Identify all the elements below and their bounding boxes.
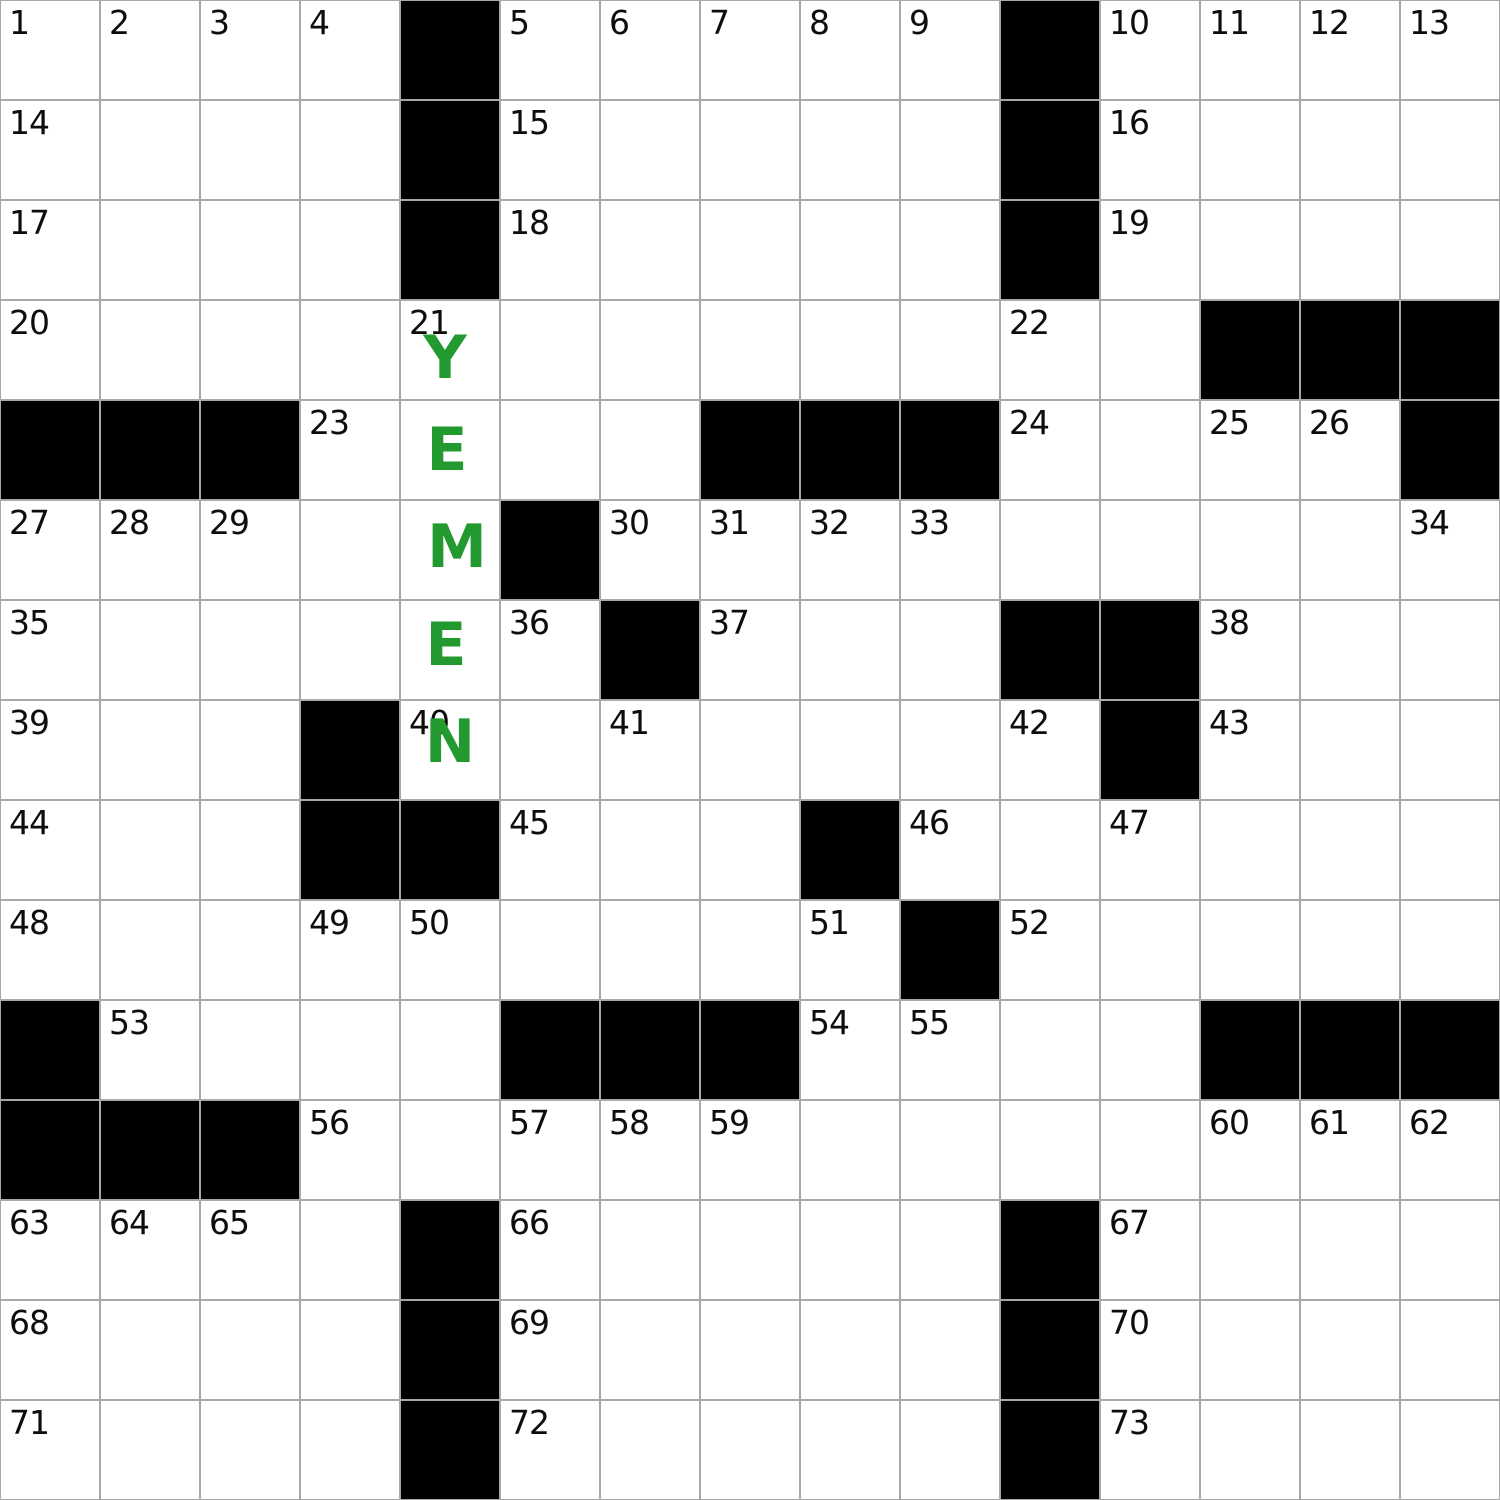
grid-cell[interactable]: 49 xyxy=(300,900,400,1000)
clue-number: 57 xyxy=(509,1102,549,1143)
grid-cell[interactable] xyxy=(100,800,200,900)
grid-cell[interactable] xyxy=(100,200,200,300)
clue-number: 38 xyxy=(1209,602,1249,643)
grid-cell[interactable]: 6 xyxy=(600,0,700,100)
grid-cell[interactable] xyxy=(500,900,600,1000)
grid-cell[interactable] xyxy=(1200,1300,1300,1400)
clue-number: 52 xyxy=(1009,902,1049,943)
grid-cell[interactable] xyxy=(1200,900,1300,1000)
grid-cell[interactable]: 53 xyxy=(100,1000,200,1100)
grid-cell[interactable] xyxy=(1300,500,1400,600)
grid-cell[interactable]: 52 xyxy=(1000,900,1100,1000)
grid-cell[interactable]: 57 xyxy=(500,1100,600,1200)
grid-cell[interactable] xyxy=(1400,800,1500,900)
grid-cell[interactable] xyxy=(300,1200,400,1300)
black-cell xyxy=(1400,1000,1500,1100)
grid-cell[interactable] xyxy=(200,200,300,300)
clue-number: 28 xyxy=(109,502,149,543)
clue-number: 27 xyxy=(9,502,49,543)
clue-number: 31 xyxy=(709,502,749,543)
grid-cell[interactable] xyxy=(200,300,300,400)
answer-letter: E xyxy=(427,420,468,480)
grid-cell[interactable]: 35 xyxy=(0,600,100,700)
grid-cell[interactable]: 59 xyxy=(700,1100,800,1200)
grid-cell[interactable]: 54 xyxy=(800,1000,900,1100)
clue-number: 30 xyxy=(609,502,649,543)
grid-cell[interactable] xyxy=(400,1000,500,1100)
grid-cell[interactable]: M xyxy=(400,500,500,600)
black-cell xyxy=(100,400,200,500)
clue-number: 29 xyxy=(209,502,249,543)
grid-cell[interactable]: 46 xyxy=(900,800,1000,900)
black-cell xyxy=(0,400,100,500)
grid-cell[interactable] xyxy=(300,200,400,300)
grid-cell[interactable] xyxy=(900,200,1000,300)
grid-cell[interactable]: 15 xyxy=(500,100,600,200)
grid-cell[interactable]: 3 xyxy=(200,0,300,100)
clue-number: 59 xyxy=(709,1102,749,1143)
grid-cell[interactable]: 50 xyxy=(400,900,500,1000)
clue-number: 22 xyxy=(1009,302,1049,343)
grid-cell[interactable] xyxy=(1100,1000,1200,1100)
grid-cell[interactable]: 22 xyxy=(1000,300,1100,400)
clue-number: 26 xyxy=(1309,402,1349,443)
black-cell xyxy=(300,800,400,900)
grid-cell[interactable]: 43 xyxy=(1200,700,1300,800)
clue-number: 64 xyxy=(109,1202,149,1243)
grid-cell[interactable] xyxy=(300,1000,400,1100)
grid-cell[interactable]: 70 xyxy=(1100,1300,1200,1400)
grid-cell[interactable]: 12 xyxy=(1300,0,1400,100)
grid-cell[interactable]: 67 xyxy=(1100,1200,1200,1300)
clue-number: 50 xyxy=(409,902,449,943)
clue-number: 18 xyxy=(509,202,549,243)
black-cell xyxy=(1000,200,1100,300)
grid-cell[interactable]: 13 xyxy=(1400,0,1500,100)
grid-cell[interactable]: 58 xyxy=(600,1100,700,1200)
clue-number: 41 xyxy=(609,702,649,743)
grid-cell[interactable]: 23 xyxy=(300,400,400,500)
grid-cell[interactable]: 7 xyxy=(700,0,800,100)
grid-cell[interactable]: 32 xyxy=(800,500,900,600)
grid-cell[interactable] xyxy=(100,900,200,1000)
grid-cell[interactable]: 28 xyxy=(100,500,200,600)
black-cell xyxy=(1000,1200,1100,1300)
grid-cell[interactable]: 64 xyxy=(100,1200,200,1300)
black-cell xyxy=(300,700,400,800)
clue-number: 20 xyxy=(9,302,49,343)
clue-number: 2 xyxy=(109,2,129,43)
clue-number: 68 xyxy=(9,1302,49,1343)
grid-cell[interactable]: 10 xyxy=(1100,0,1200,100)
grid-cell[interactable] xyxy=(700,800,800,900)
grid-cell[interactable] xyxy=(800,1200,900,1300)
grid-cell[interactable]: 41 xyxy=(600,700,700,800)
grid-cell[interactable]: 39 xyxy=(0,700,100,800)
grid-cell[interactable]: 20 xyxy=(0,300,100,400)
clue-number: 19 xyxy=(1109,202,1149,243)
grid-cell[interactable]: 33 xyxy=(900,500,1000,600)
clue-number: 39 xyxy=(9,702,49,743)
clue-number: 42 xyxy=(1009,702,1049,743)
grid-cell[interactable] xyxy=(600,200,700,300)
grid-cell[interactable]: 27 xyxy=(0,500,100,600)
grid-cell[interactable] xyxy=(900,700,1000,800)
grid-cell[interactable] xyxy=(100,1300,200,1400)
grid-cell[interactable]: 60 xyxy=(1200,1100,1300,1200)
grid-cell[interactable] xyxy=(1400,200,1500,300)
grid-cell[interactable] xyxy=(600,1400,700,1500)
answer-letter: E xyxy=(426,615,467,675)
clue-number: 12 xyxy=(1309,2,1349,43)
black-cell xyxy=(500,1000,600,1100)
grid-cell[interactable] xyxy=(900,300,1000,400)
grid-cell[interactable] xyxy=(1400,900,1500,1000)
grid-cell[interactable]: 65 xyxy=(200,1200,300,1300)
grid-cell[interactable] xyxy=(800,300,900,400)
grid-cell[interactable] xyxy=(500,400,600,500)
clue-number: 8 xyxy=(809,2,829,43)
grid-cell[interactable] xyxy=(800,1100,900,1200)
grid-cell[interactable] xyxy=(100,700,200,800)
grid-cell[interactable]: 5 xyxy=(500,0,600,100)
clue-number: 36 xyxy=(509,602,549,643)
grid-cell[interactable]: 30 xyxy=(600,500,700,600)
black-cell xyxy=(1300,1000,1400,1100)
grid-cell[interactable] xyxy=(800,200,900,300)
black-cell xyxy=(1300,300,1400,400)
black-cell xyxy=(1400,400,1500,500)
clue-number: 72 xyxy=(509,1402,549,1443)
grid-cell[interactable] xyxy=(700,300,800,400)
grid-cell[interactable] xyxy=(200,800,300,900)
grid-cell[interactable] xyxy=(300,500,400,600)
black-cell xyxy=(400,100,500,200)
grid-cell[interactable] xyxy=(1200,200,1300,300)
grid-cell[interactable] xyxy=(1400,1400,1500,1500)
black-cell xyxy=(1000,1400,1100,1500)
grid-cell[interactable]: 31 xyxy=(700,500,800,600)
grid-cell[interactable] xyxy=(300,1300,400,1400)
clue-number: 51 xyxy=(809,902,849,943)
clue-number: 4 xyxy=(309,2,329,43)
grid-cell[interactable] xyxy=(200,1000,300,1100)
clue-number: 35 xyxy=(9,602,49,643)
clue-number: 54 xyxy=(809,1002,849,1043)
clue-number: 23 xyxy=(309,402,349,443)
black-cell xyxy=(400,200,500,300)
clue-number: 9 xyxy=(909,2,929,43)
grid-cell[interactable] xyxy=(1200,1200,1300,1300)
grid-cell[interactable]: 21Y xyxy=(400,300,500,400)
clue-number: 63 xyxy=(9,1202,49,1243)
clue-number: 37 xyxy=(709,602,749,643)
grid-cell[interactable]: 18 xyxy=(500,200,600,300)
black-cell xyxy=(100,1100,200,1200)
grid-cell[interactable] xyxy=(600,1300,700,1400)
grid-cell[interactable]: 8 xyxy=(800,0,900,100)
grid-cell[interactable] xyxy=(900,1100,1000,1200)
grid-cell[interactable]: 56 xyxy=(300,1100,400,1200)
grid-cell[interactable] xyxy=(1200,500,1300,600)
grid-cell[interactable] xyxy=(600,800,700,900)
grid-cell[interactable]: 36 xyxy=(500,600,600,700)
grid-cell[interactable] xyxy=(700,900,800,1000)
answer-letter: Y xyxy=(423,328,466,388)
grid-cell[interactable]: 62 xyxy=(1400,1100,1500,1200)
black-cell xyxy=(400,800,500,900)
grid-cell[interactable]: 26 xyxy=(1300,400,1400,500)
clue-number: 73 xyxy=(1109,1402,1149,1443)
clue-number: 67 xyxy=(1109,1202,1149,1243)
grid-cell[interactable]: 1 xyxy=(0,0,100,100)
grid-cell[interactable]: 16 xyxy=(1100,100,1200,200)
grid-cell[interactable] xyxy=(1000,1000,1100,1100)
clue-number: 45 xyxy=(509,802,549,843)
grid-cell[interactable] xyxy=(1000,500,1100,600)
clue-number: 17 xyxy=(9,202,49,243)
black-cell xyxy=(900,900,1000,1000)
grid-cell[interactable] xyxy=(1400,1200,1500,1300)
grid-cell[interactable] xyxy=(1300,1300,1400,1400)
grid-cell[interactable] xyxy=(1200,800,1300,900)
clue-number: 33 xyxy=(909,502,949,543)
grid-cell[interactable] xyxy=(300,600,400,700)
grid-cell[interactable]: E xyxy=(400,400,500,500)
clue-number: 13 xyxy=(1409,2,1449,43)
grid-cell[interactable]: 29 xyxy=(200,500,300,600)
grid-cell[interactable] xyxy=(600,900,700,1000)
grid-cell[interactable] xyxy=(1300,800,1400,900)
black-cell xyxy=(700,400,800,500)
clue-number: 3 xyxy=(209,2,229,43)
grid-cell[interactable] xyxy=(1100,1100,1200,1200)
clue-number: 70 xyxy=(1109,1302,1149,1343)
grid-cell[interactable]: 25 xyxy=(1200,400,1300,500)
clue-number: 16 xyxy=(1109,102,1149,143)
grid-cell[interactable]: E xyxy=(400,600,500,700)
clue-number: 34 xyxy=(1409,502,1449,543)
clue-number: 11 xyxy=(1209,2,1249,43)
clue-number: 24 xyxy=(1009,402,1049,443)
grid-cell[interactable] xyxy=(1300,1200,1400,1300)
grid-cell[interactable] xyxy=(1300,600,1400,700)
grid-cell[interactable]: 14 xyxy=(0,100,100,200)
grid-cell[interactable] xyxy=(300,100,400,200)
grid-cell[interactable]: 63 xyxy=(0,1200,100,1300)
black-cell xyxy=(1100,700,1200,800)
black-cell xyxy=(400,1300,500,1400)
grid-cell[interactable] xyxy=(800,700,900,800)
grid-cell[interactable]: 66 xyxy=(500,1200,600,1300)
grid-cell[interactable] xyxy=(500,700,600,800)
grid-cell[interactable] xyxy=(1300,1400,1400,1500)
grid-cell[interactable]: 55 xyxy=(900,1000,1000,1100)
grid-cell[interactable] xyxy=(1100,900,1200,1000)
grid-cell[interactable] xyxy=(1200,100,1300,200)
clue-number: 58 xyxy=(609,1102,649,1143)
grid-cell[interactable] xyxy=(700,700,800,800)
clue-number: 47 xyxy=(1109,802,1149,843)
clue-number: 32 xyxy=(809,502,849,543)
grid-cell[interactable] xyxy=(600,400,700,500)
grid-cell[interactable] xyxy=(200,700,300,800)
grid-cell[interactable] xyxy=(1300,700,1400,800)
grid-cell[interactable] xyxy=(200,600,300,700)
grid-cell[interactable] xyxy=(300,1400,400,1500)
grid-cell[interactable]: 51 xyxy=(800,900,900,1000)
clue-number: 65 xyxy=(209,1202,249,1243)
grid-cell[interactable]: 42 xyxy=(1000,700,1100,800)
clue-number: 1 xyxy=(9,2,29,43)
clue-number: 7 xyxy=(709,2,729,43)
black-cell xyxy=(400,0,500,100)
grid-cell[interactable] xyxy=(1100,500,1200,600)
grid-cell[interactable] xyxy=(1300,900,1400,1000)
grid-cell[interactable]: 44 xyxy=(0,800,100,900)
grid-cell[interactable]: 48 xyxy=(0,900,100,1000)
grid-cell[interactable]: 9 xyxy=(900,0,1000,100)
grid-cell[interactable]: 40N xyxy=(400,700,500,800)
grid-cell[interactable] xyxy=(500,300,600,400)
black-cell xyxy=(1000,100,1100,200)
grid-cell[interactable] xyxy=(700,100,800,200)
black-cell xyxy=(1000,0,1100,100)
clue-number: 43 xyxy=(1209,702,1249,743)
grid-cell[interactable] xyxy=(1000,1100,1100,1200)
black-cell xyxy=(400,1200,500,1300)
grid-cell[interactable] xyxy=(1100,300,1200,400)
grid-cell[interactable] xyxy=(100,600,200,700)
grid-cell[interactable] xyxy=(900,1200,1000,1300)
clue-number: 55 xyxy=(909,1002,949,1043)
grid-cell[interactable]: 38 xyxy=(1200,600,1300,700)
grid-cell[interactable] xyxy=(1400,1300,1500,1400)
grid-cell[interactable]: 71 xyxy=(0,1400,100,1500)
grid-cell[interactable] xyxy=(700,200,800,300)
black-cell xyxy=(900,400,1000,500)
black-cell xyxy=(800,800,900,900)
clue-number: 66 xyxy=(509,1202,549,1243)
clue-number: 6 xyxy=(609,2,629,43)
black-cell xyxy=(0,1000,100,1100)
grid-cell[interactable]: 37 xyxy=(700,600,800,700)
grid-cell[interactable] xyxy=(100,1400,200,1500)
grid-cell[interactable] xyxy=(300,300,400,400)
grid-cell[interactable]: 2 xyxy=(100,0,200,100)
grid-cell[interactable]: 72 xyxy=(500,1400,600,1500)
grid-cell[interactable] xyxy=(400,1100,500,1200)
grid-cell[interactable]: 19 xyxy=(1100,200,1200,300)
clue-number: 61 xyxy=(1309,1102,1349,1143)
grid-cell[interactable] xyxy=(1400,600,1500,700)
grid-cell[interactable] xyxy=(700,1200,800,1300)
black-cell xyxy=(1400,300,1500,400)
black-cell xyxy=(1200,1000,1300,1100)
black-cell xyxy=(600,600,700,700)
black-cell xyxy=(500,500,600,600)
grid-cell[interactable] xyxy=(1300,200,1400,300)
grid-cell[interactable] xyxy=(600,1200,700,1300)
clue-number: 25 xyxy=(1209,402,1249,443)
black-cell xyxy=(800,400,900,500)
clue-number: 56 xyxy=(309,1102,349,1143)
grid-cell[interactable]: 69 xyxy=(500,1300,600,1400)
grid-cell[interactable] xyxy=(800,1300,900,1400)
black-cell xyxy=(600,1000,700,1100)
grid-cell[interactable] xyxy=(200,100,300,200)
clue-number: 5 xyxy=(509,2,529,43)
clue-number: 49 xyxy=(309,902,349,943)
grid-cell[interactable] xyxy=(900,1400,1000,1500)
grid-cell[interactable] xyxy=(1200,1400,1300,1500)
grid-cell[interactable] xyxy=(200,900,300,1000)
grid-cell[interactable] xyxy=(700,1300,800,1400)
grid-cell[interactable]: 24 xyxy=(1000,400,1100,500)
grid-cell[interactable] xyxy=(800,100,900,200)
clue-number: 14 xyxy=(9,102,49,143)
clue-number: 69 xyxy=(509,1302,549,1343)
clue-number: 53 xyxy=(109,1002,149,1043)
grid-cell[interactable]: 73 xyxy=(1100,1400,1200,1500)
clue-number: 44 xyxy=(9,802,49,843)
grid-cell[interactable] xyxy=(600,100,700,200)
clue-number: 15 xyxy=(509,102,549,143)
black-cell xyxy=(1200,300,1300,400)
black-cell xyxy=(0,1100,100,1200)
grid-cell[interactable] xyxy=(200,1300,300,1400)
grid-cell[interactable]: 68 xyxy=(0,1300,100,1400)
grid-cell[interactable] xyxy=(600,300,700,400)
grid-cell[interactable] xyxy=(100,100,200,200)
grid-cell[interactable]: 47 xyxy=(1100,800,1200,900)
grid-cell[interactable] xyxy=(900,600,1000,700)
grid-cell[interactable] xyxy=(900,100,1000,200)
grid-cell[interactable]: 11 xyxy=(1200,0,1300,100)
black-cell xyxy=(1000,600,1100,700)
crossword-grid: 123456789101112131415161718192021Y2223E2… xyxy=(0,0,1500,1500)
grid-cell[interactable] xyxy=(1400,100,1500,200)
grid-cell[interactable] xyxy=(1400,700,1500,800)
grid-cell[interactable] xyxy=(1300,100,1400,200)
clue-number: 60 xyxy=(1209,1102,1249,1143)
grid-cell[interactable]: 61 xyxy=(1300,1100,1400,1200)
grid-cell[interactable]: 4 xyxy=(300,0,400,100)
answer-letter: N xyxy=(425,712,475,772)
grid-cell[interactable] xyxy=(800,1400,900,1500)
grid-cell[interactable] xyxy=(800,600,900,700)
answer-letter: M xyxy=(427,517,487,577)
grid-cell[interactable] xyxy=(100,300,200,400)
black-cell xyxy=(200,1100,300,1200)
grid-cell[interactable] xyxy=(700,1400,800,1500)
black-cell xyxy=(1100,600,1200,700)
grid-cell[interactable]: 45 xyxy=(500,800,600,900)
black-cell xyxy=(400,1400,500,1500)
clue-number: 71 xyxy=(9,1402,49,1443)
grid-cell[interactable]: 17 xyxy=(0,200,100,300)
clue-number: 46 xyxy=(909,802,949,843)
clue-number: 62 xyxy=(1409,1102,1449,1143)
clue-number: 48 xyxy=(9,902,49,943)
grid-cell[interactable] xyxy=(200,1400,300,1500)
grid-cell[interactable] xyxy=(900,1300,1000,1400)
black-cell xyxy=(200,400,300,500)
grid-cell[interactable] xyxy=(1000,800,1100,900)
black-cell xyxy=(1000,1300,1100,1400)
grid-cell[interactable] xyxy=(1100,400,1200,500)
grid-cell[interactable]: 34 xyxy=(1400,500,1500,600)
